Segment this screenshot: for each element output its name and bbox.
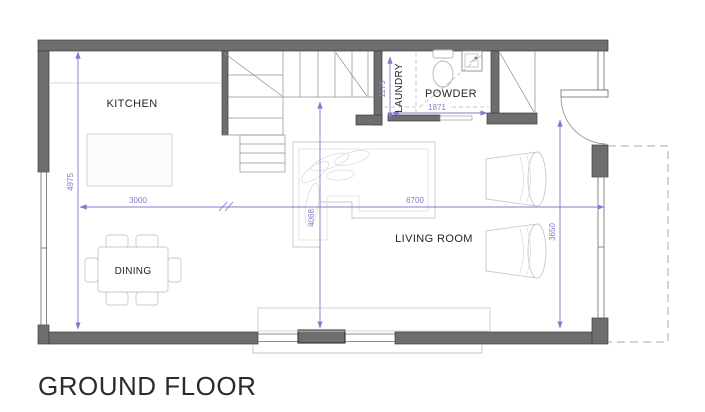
- sink-symbol: [462, 51, 482, 71]
- sofa-symbol: [293, 142, 435, 247]
- toilet-symbol: [433, 50, 453, 87]
- dim-interior-height: 4068: [307, 209, 316, 227]
- entry-sidelite-symbol: [594, 51, 608, 90]
- floor-plan-title: GROUND FLOOR: [38, 371, 256, 402]
- porch-outline: [608, 146, 668, 342]
- dim-powder-width: 1871: [428, 103, 446, 112]
- dim-laundry-depth: 1175: [378, 80, 387, 98]
- left-window-symbol: [38, 172, 49, 325]
- closet-symbol: [500, 51, 535, 113]
- armchair-symbol: [486, 152, 546, 206]
- room-label-living-room: LIVING ROOM: [395, 233, 473, 245]
- pocket-door-slab: [440, 116, 472, 120]
- entry-door-symbol: [561, 90, 608, 144]
- dim-kitchen-width: 3000: [129, 196, 147, 205]
- armchair-symbol: [486, 224, 546, 278]
- console-symbol: [258, 308, 490, 331]
- dim-living-width: 6700: [406, 196, 424, 205]
- dim-left-height: 4975: [66, 173, 75, 191]
- floor-plan-page: 4975 3000 6700 4068 3650 1175 1871 KITCH…: [0, 0, 705, 412]
- floor-plan-drawing: 4975 3000 6700 4068 3650 1175 1871 KITCH…: [0, 0, 705, 412]
- kitchen-island-symbol: [87, 134, 172, 186]
- right-window-symbol: [594, 177, 608, 318]
- room-label-powder: POWDER: [425, 88, 477, 100]
- room-label-kitchen: KITCHEN: [106, 98, 157, 110]
- room-label-laundry: LAUNDRY: [394, 63, 405, 113]
- room-label-dining: DINING: [115, 266, 152, 277]
- dim-living-height: 3650: [548, 223, 557, 241]
